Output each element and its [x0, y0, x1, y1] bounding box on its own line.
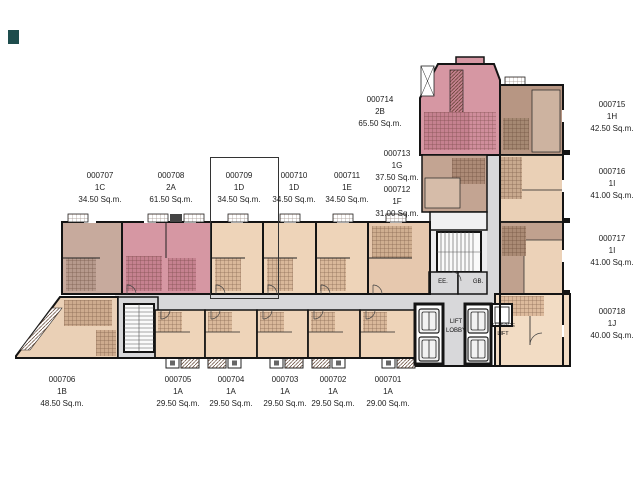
unit-label-000716: 000716 1I 41.00 Sq.m. [590, 166, 633, 202]
unit-000707-plan[interactable] [62, 222, 122, 294]
unit-000713-plan[interactable] [422, 155, 487, 212]
unit-label-000714: 000714 2B 65.50 Sq.m. [358, 94, 401, 130]
stairs-left [118, 297, 158, 358]
unit-000711-plan[interactable] [316, 222, 368, 294]
unit-label-000703: 000703 1A 29.50 Sq.m. [263, 374, 306, 410]
facade-ticks [563, 150, 570, 295]
unit-000706-plan[interactable] [16, 297, 118, 358]
unit-000715-plan[interactable] [500, 77, 563, 155]
lift-lobby-label: LIFT LOBBY [446, 318, 466, 336]
unit-label-000704: 000704 1A 29.50 Sq.m. [209, 374, 252, 410]
gb-label: GB. [473, 278, 483, 287]
unit-000717-plan[interactable] [500, 222, 563, 294]
unit-label-000715: 000715 1H 42.50 Sq.m. [590, 99, 633, 135]
unit-000716-plan[interactable] [500, 155, 563, 222]
unit-label-000711: 000711 1E 34.50 Sq.m. [325, 170, 368, 206]
unit-label-000705: 000705 1A 29.50 Sq.m. [156, 374, 199, 410]
unit-label-000707: 000707 1C 34.50 Sq.m. [78, 170, 121, 206]
unit-label-000709: 000709 1D 34.50 Sq.m. [217, 170, 260, 206]
ee-label: EE. [438, 278, 448, 287]
unit-label-000701: 000701 1A 29.00 Sq.m. [366, 374, 409, 410]
unit-000708-plan[interactable] [122, 222, 211, 294]
unit-label-000712: 000712 1F 31.00 Sq.m. [375, 184, 418, 220]
stairs-core [430, 212, 487, 272]
unit-label-000717: 000717 1I 41.00 Sq.m. [590, 233, 633, 269]
floor-plan: 000707 1C 34.50 Sq.m. 000708 2A 61.50 Sq… [0, 0, 640, 480]
unit-label-000713: 000713 1G 37.50 Sq.m. [375, 148, 418, 184]
unit-label-000706: 000706 1B 48.50 Sq.m. [40, 374, 83, 410]
unit-label-000708: 000708 2A 61.50 Sq.m. [149, 170, 192, 206]
unit-000712-plan[interactable] [368, 222, 430, 294]
service-lift-label: SERVICE LIFT [491, 322, 515, 338]
unit-000714-plan[interactable] [420, 57, 500, 155]
unit-label-000702: 000702 1A 29.50 Sq.m. [311, 374, 354, 410]
unit-label-000710: 000710 1D 34.50 Sq.m. [272, 170, 315, 206]
unit-label-000718: 000718 1J 40.00 Sq.m. [590, 306, 633, 342]
